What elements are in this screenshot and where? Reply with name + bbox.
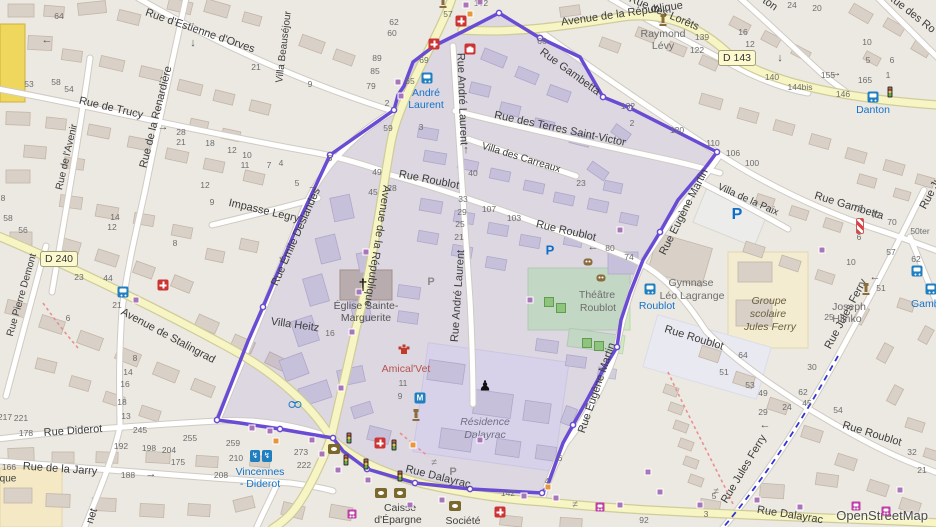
- poi-label: Laurent: [408, 99, 444, 111]
- house-number: 57: [886, 247, 895, 257]
- house-number: 21: [176, 137, 185, 147]
- house-number: 10: [242, 150, 251, 160]
- house-number: 53: [745, 380, 754, 390]
- poi-dot-icon: [363, 249, 370, 256]
- house-number: 273: [294, 447, 308, 457]
- poi-dot-icon: [477, 0, 484, 6]
- supermarket-cart-icon: [348, 510, 357, 519]
- supermarket-cart-icon: [852, 502, 861, 511]
- house-number: 53: [24, 79, 33, 89]
- building: [4, 488, 32, 503]
- house-number: 12: [107, 222, 116, 232]
- house-number: 23: [74, 272, 83, 282]
- house-number: 66: [537, 36, 546, 46]
- bank-icon: [375, 488, 387, 498]
- house-number: 13: [121, 411, 130, 421]
- house-number: 3: [419, 122, 424, 132]
- house-number: 110: [706, 138, 720, 148]
- house-number: 9: [308, 79, 313, 89]
- poi-dot-icon: [657, 489, 664, 496]
- building: [52, 452, 74, 463]
- house-number: 204: [162, 445, 176, 455]
- pharmacy-icon: [158, 280, 169, 291]
- house-number: 40: [468, 168, 477, 178]
- poi-dot-icon: [365, 477, 372, 484]
- building: [188, 503, 211, 517]
- poi-label: Marguerite: [341, 312, 391, 324]
- house-number: 3: [704, 509, 709, 519]
- house-number: 21: [454, 232, 463, 242]
- house-number: 72: [871, 210, 880, 220]
- poi-label: Dalayrac: [464, 429, 505, 441]
- house-number: 8: [1, 193, 6, 203]
- house-number: 5: [295, 178, 300, 188]
- poi-label: André: [412, 87, 440, 99]
- house-number: 245: [133, 425, 147, 435]
- poi-dot-icon: [398, 93, 405, 100]
- house-number: 62: [389, 17, 398, 27]
- house-number: 32: [907, 447, 916, 457]
- house-number: 60: [387, 28, 396, 38]
- building: [6, 170, 30, 183]
- poi-dot-icon: [819, 247, 826, 254]
- house-number: 192: [114, 441, 128, 451]
- poi-label: Société: [445, 515, 480, 527]
- house-number: 1: [886, 70, 891, 80]
- poi-label: d'Épargne: [374, 514, 422, 526]
- bank-icon: [394, 488, 406, 498]
- poi-dot-icon: [133, 297, 140, 304]
- house-number: 54: [833, 405, 842, 415]
- poi-label: Lévy: [652, 40, 674, 52]
- map-canvas[interactable]: OpenStreetMap Avenue de la RépubliqueRue…: [0, 0, 936, 527]
- house-number: 120: [670, 125, 684, 135]
- house-number: 6: [890, 55, 895, 65]
- house-number: 198: [142, 443, 156, 453]
- street-label: que: [0, 474, 16, 485]
- house-number: 122: [690, 45, 704, 55]
- house-number: 14: [123, 367, 132, 377]
- poi-label: Théâtre: [579, 289, 615, 301]
- house-number: 70: [887, 217, 896, 227]
- house-number: 14: [110, 212, 119, 222]
- house-number: 29: [758, 407, 767, 417]
- poi-dot-icon: [338, 385, 345, 392]
- memorial-icon: [659, 14, 668, 26]
- building: [196, 455, 219, 468]
- tree-icon: [556, 303, 566, 313]
- house-number: 58: [3, 213, 12, 223]
- traffic-signal-icon: [888, 87, 893, 98]
- oneway-arrow-icon: ↓: [190, 37, 196, 49]
- oneway-arrow-icon: →: [158, 121, 169, 133]
- house-number: 30: [807, 362, 816, 372]
- oneway-arrow-icon: →: [308, 180, 319, 192]
- memorial-icon: [439, 0, 448, 8]
- house-number: 21: [112, 300, 121, 310]
- oneway-arrow-icon: →: [831, 67, 842, 79]
- supermarket-cart-icon: [596, 503, 605, 512]
- poi-dot-icon: [697, 502, 704, 509]
- building: [738, 262, 772, 282]
- poi-dot-icon: [439, 497, 446, 504]
- building: [140, 503, 165, 517]
- house-number: 58: [51, 77, 60, 87]
- house-number: 44: [103, 273, 112, 283]
- poi-dot-icon: [754, 497, 761, 504]
- poi-dot-icon: [897, 487, 904, 494]
- oneway-arrow-icon: ←: [42, 34, 53, 46]
- house-number: 4: [279, 158, 284, 168]
- tree-icon: [594, 341, 604, 351]
- road-ref-shield: D 143: [718, 50, 756, 66]
- charging-station-icon: ↯: [250, 450, 260, 462]
- house-number: 8: [173, 238, 178, 248]
- house-number: 49: [372, 167, 381, 177]
- parking-icon: P: [546, 243, 555, 258]
- poi-dot-icon: [335, 467, 342, 474]
- house-number: 49: [758, 388, 767, 398]
- house-number: 28: [176, 127, 185, 137]
- poi-label: Vincennes: [236, 466, 285, 478]
- house-number: 166: [2, 462, 16, 472]
- house-number: 139: [695, 32, 709, 42]
- poi-dot-icon: [797, 504, 804, 511]
- traffic-signal-icon: [364, 459, 369, 470]
- house-number: 222: [297, 460, 311, 470]
- house-number: 16: [120, 379, 129, 389]
- poi-label: Gymnase: [669, 277, 714, 289]
- level-crossing-icon: ≠: [713, 487, 719, 498]
- house-number: 23: [576, 178, 585, 188]
- poi-dot-icon: [467, 11, 474, 18]
- poi-label: Amical'Vet: [382, 363, 431, 375]
- house-number: 57: [443, 9, 452, 19]
- bus-stop-icon: [912, 266, 923, 277]
- parking-icon: P: [732, 206, 743, 224]
- house-number: 175: [171, 457, 185, 467]
- poi-dot-icon: [273, 438, 280, 445]
- building: [815, 473, 838, 488]
- house-number: 20: [812, 3, 821, 13]
- house-number: 106: [726, 148, 740, 158]
- house-number: 188: [121, 470, 135, 480]
- building: [760, 483, 785, 499]
- poi-label: Hlinko: [832, 313, 861, 325]
- poi-dot-icon: [617, 502, 624, 509]
- poi-dot-icon: [407, 502, 414, 509]
- charging-station-icon: ↯: [262, 450, 272, 462]
- bank-icon: [328, 444, 340, 454]
- oneway-arrow-icon: →: [146, 468, 157, 480]
- poi-label: Groupe: [751, 295, 786, 307]
- house-number: 11: [241, 160, 250, 170]
- house-number: 255: [183, 433, 197, 443]
- house-number: 18: [205, 138, 214, 148]
- traffic-signal-icon: [344, 455, 349, 466]
- poi-label: Gambetta: [911, 298, 936, 310]
- road-ref-shield: D 240: [40, 251, 78, 267]
- traffic-signal-icon: [392, 440, 397, 451]
- house-number: 79: [366, 81, 375, 91]
- poi-dot-icon: [309, 437, 316, 444]
- bank-icon: [449, 501, 461, 511]
- house-number: 21: [251, 62, 260, 72]
- tree-icon: [582, 338, 592, 348]
- house-number: 144bis: [787, 82, 812, 92]
- doctor-icon: [465, 44, 476, 55]
- house-number: 217: [0, 412, 12, 422]
- house-number: 24: [782, 402, 791, 412]
- house-number: 28: [387, 183, 396, 193]
- building: [6, 112, 30, 126]
- poi-dot-icon: [477, 437, 484, 444]
- vet-paw-icon: [401, 348, 407, 354]
- house-number: 12: [227, 145, 236, 155]
- pharmacy-icon: [375, 438, 386, 449]
- pharmacy-icon: [456, 16, 467, 27]
- metro-icon: M: [415, 393, 426, 404]
- building: [77, 1, 106, 16]
- house-number: 25: [455, 219, 464, 229]
- poi-label: - Diderot: [240, 478, 280, 490]
- house-number: 142: [501, 488, 515, 498]
- house-number: 208: [214, 470, 228, 480]
- poi-dot-icon: [349, 329, 356, 336]
- house-number: 62: [911, 254, 920, 264]
- house-number: 92: [639, 515, 648, 525]
- house-number: 107: [482, 204, 496, 214]
- house-number: 76: [853, 203, 862, 213]
- house-number: 89: [372, 53, 381, 63]
- house-number: 45: [802, 398, 811, 408]
- house-number: 178: [19, 428, 33, 438]
- house-number: 21: [917, 465, 926, 475]
- house-number: 80: [605, 243, 614, 253]
- poi-dot-icon: [521, 493, 528, 500]
- poi-label: Danton: [856, 104, 890, 116]
- poi-dot-icon: [395, 79, 402, 86]
- house-number: 54: [64, 84, 73, 94]
- poi-dot-icon: [545, 484, 552, 491]
- house-number: 140: [765, 72, 779, 82]
- house-number: 62: [798, 387, 807, 397]
- house-number: 51: [719, 367, 728, 377]
- house-number: 33: [458, 194, 467, 204]
- building: [24, 145, 47, 159]
- poi-dot-icon: [356, 289, 363, 296]
- house-number: 7: [267, 160, 272, 170]
- house-number: 2: [385, 98, 390, 108]
- house-number: 64: [54, 11, 63, 21]
- traffic-signal-icon: [347, 433, 352, 444]
- statue-icon: ♟: [479, 378, 492, 395]
- poi-label: scolaire: [750, 308, 786, 320]
- house-number: 10: [846, 257, 855, 267]
- oneway-arrow-icon: ↓: [777, 52, 783, 64]
- poi-dot-icon: [410, 442, 417, 449]
- oneway-arrow-icon: ←: [870, 271, 881, 283]
- poi-label: Roublot: [580, 302, 616, 314]
- poi-label: Raymond: [641, 28, 686, 40]
- pharmacy-icon: [429, 39, 440, 50]
- poi-label: Résidence: [460, 416, 510, 428]
- poi-label: Jules Ferry: [744, 321, 796, 333]
- house-number: 12: [745, 39, 754, 49]
- building: [45, 117, 66, 130]
- oneway-arrow-icon: ↑: [463, 144, 469, 156]
- bus-stop-icon: [868, 92, 879, 103]
- memorial-icon: [412, 409, 421, 421]
- construction-barrier-icon: [856, 218, 864, 234]
- house-number: 59: [383, 123, 392, 133]
- house-number: 100: [745, 158, 759, 168]
- house-number: 69: [419, 55, 428, 65]
- parking-icon: P: [427, 276, 434, 288]
- bus-stop-icon: [422, 73, 433, 84]
- house-number: 11: [399, 378, 408, 388]
- supermarket-cart-icon: [882, 507, 891, 516]
- bicycle-parking-icon: [289, 399, 302, 407]
- house-number: 10: [862, 37, 871, 47]
- house-number: 2: [630, 118, 635, 128]
- traffic-signal-icon: [398, 471, 403, 482]
- poi-label: Joseph: [832, 301, 866, 313]
- house-number: 132: [621, 101, 635, 111]
- house-number: 24: [787, 0, 796, 10]
- house-number: 64: [738, 350, 747, 360]
- building: [61, 49, 82, 63]
- house-number: 45: [368, 187, 377, 197]
- theatre-mask-icon: [584, 259, 593, 266]
- house-number: 221: [14, 413, 28, 423]
- poi-dot-icon: [553, 495, 560, 502]
- house-number: 65: [405, 76, 414, 86]
- bus-stop-icon: [118, 287, 129, 298]
- house-number: 6: [558, 453, 563, 463]
- level-crossing-icon: ≠: [431, 458, 437, 469]
- house-number: 5: [866, 55, 871, 65]
- house-number: 74: [624, 252, 633, 262]
- house-number: 56: [18, 225, 27, 235]
- house-number: 51: [876, 283, 885, 293]
- house-number: 50ter: [910, 226, 929, 236]
- house-number: 85: [370, 66, 379, 76]
- tree-icon: [544, 297, 554, 307]
- house-number: 9: [398, 391, 403, 401]
- house-number: 9: [210, 197, 215, 207]
- house-number: 6: [66, 313, 71, 323]
- house-number: 210: [229, 453, 243, 463]
- house-number: 29: [457, 207, 466, 217]
- house-number: 16: [738, 27, 747, 37]
- poi-dot-icon: [527, 297, 534, 304]
- memorial-icon: [862, 283, 871, 295]
- bus-stop-icon: [645, 284, 656, 295]
- poi-dot-icon: [617, 227, 624, 234]
- poi-label: Léo Lagrange: [660, 290, 725, 302]
- oneway-arrow-icon: ←: [760, 419, 771, 431]
- poi-dot-icon: [645, 469, 652, 476]
- poi-dot-icon: [463, 2, 470, 9]
- house-number: 165: [858, 75, 872, 85]
- house-number: 12: [200, 180, 209, 190]
- poi-dot-icon: [267, 428, 274, 435]
- poi-dot-icon: [249, 425, 256, 432]
- building: [8, 4, 34, 17]
- house-number: 146: [836, 89, 850, 99]
- house-number: 18: [117, 397, 126, 407]
- house-number: 5: [328, 153, 333, 163]
- poi-dot-icon: [319, 451, 326, 458]
- building: [46, 494, 70, 508]
- pharmacy-icon: [495, 507, 506, 518]
- level-crossing-icon: ≠: [572, 500, 578, 511]
- bus-stop-icon: [926, 284, 936, 295]
- house-number: 16: [325, 328, 334, 338]
- house-number: 103: [507, 213, 521, 223]
- house-number: 8: [133, 353, 138, 363]
- poi-label: Église Sainte-: [334, 300, 399, 312]
- building: [560, 517, 583, 527]
- parking-icon: P: [449, 466, 456, 478]
- house-number: 259: [226, 438, 240, 448]
- oneway-arrow-icon: ←: [588, 241, 599, 253]
- theatre-mask-icon: [597, 275, 606, 282]
